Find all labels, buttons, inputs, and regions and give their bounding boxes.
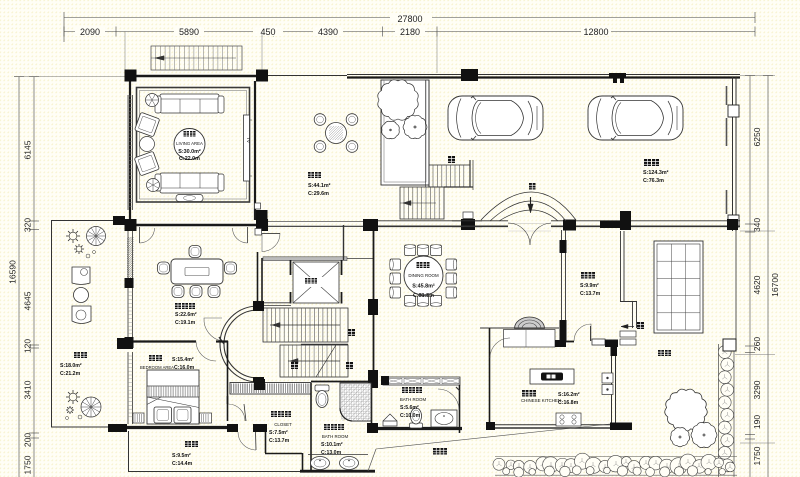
svg-text:27800: 27800 [397,14,422,24]
svg-text:6145: 6145 [23,140,33,159]
svg-text:S:9.5m²: S:9.5m² [172,453,191,459]
svg-text:C:76.3m: C:76.3m [643,178,664,184]
svg-text:C:13.7m: C:13.7m [580,291,601,297]
svg-text:S:9.9m²: S:9.9m² [580,283,599,289]
svg-text:S:124.3m²: S:124.3m² [643,170,669,176]
svg-text:450: 450 [260,27,275,37]
svg-text:1750: 1750 [23,455,33,474]
svg-text:CLOSET: CLOSET [274,422,292,427]
svg-text:4645: 4645 [23,291,33,310]
svg-text:S:7.5m²: S:7.5m² [269,430,288,436]
svg-text:S:18.0m²: S:18.0m² [60,363,82,369]
svg-text:C:29.6m: C:29.6m [308,191,329,197]
svg-text:4620: 4620 [752,275,762,294]
svg-text:6250: 6250 [752,127,762,146]
svg-text:LIVING AREA: LIVING AREA [176,141,203,146]
svg-text:C:13.7m: C:13.7m [269,438,290,444]
svg-text:200: 200 [23,433,33,447]
svg-text:16590: 16590 [8,260,18,284]
svg-text:BATH ROOM: BATH ROOM [322,434,349,439]
svg-text:3410: 3410 [23,380,33,399]
svg-text:4390: 4390 [318,27,338,37]
svg-text:S:44.1m²: S:44.1m² [308,183,331,189]
svg-text:C:16.0m: C:16.0m [174,365,195,371]
svg-text:C:16.8m: C:16.8m [558,400,579,406]
svg-text:260: 260 [752,337,762,351]
svg-text:C:31.3m: C:31.3m [413,293,434,299]
svg-text:C:19.1m: C:19.1m [175,320,196,326]
svg-text:12800: 12800 [583,27,608,37]
svg-text:C:22.0m: C:22.0m [179,156,200,162]
svg-text:320: 320 [23,218,33,232]
svg-text:S:5.6m²: S:5.6m² [400,405,419,411]
svg-text:C:14.4m: C:14.4m [172,461,193,467]
svg-text:340: 340 [752,218,762,232]
svg-text:5890: 5890 [179,27,199,37]
svg-text:C:13.0m: C:13.0m [321,450,342,456]
svg-text:S:22.6m²: S:22.6m² [175,312,197,318]
svg-text:S:16.2m²: S:16.2m² [558,392,580,398]
svg-text:120: 120 [23,339,33,353]
svg-text:CHINESE KITCHEN: CHINESE KITCHEN [521,398,561,403]
svg-text:S:10.1m²: S:10.1m² [321,442,343,448]
svg-text:2180: 2180 [400,27,420,37]
svg-text:DINING ROOM: DINING ROOM [408,273,439,278]
svg-text:C:10.0m: C:10.0m [400,413,421,419]
svg-text:2090: 2090 [80,27,100,37]
svg-text:1750: 1750 [752,446,762,465]
svg-text:16700: 16700 [770,273,780,297]
svg-text:S:30.0m²: S:30.0m² [178,149,201,155]
svg-text:S:45.8m²: S:45.8m² [412,284,435,290]
svg-text:S:15.4m²: S:15.4m² [172,357,194,363]
svg-text:190: 190 [752,415,762,429]
svg-text:C:21.2m: C:21.2m [60,371,81,377]
svg-text:BEDROOM AREA: BEDROOM AREA [140,365,174,370]
svg-text:3290: 3290 [752,380,762,399]
svg-text:TV: TV [246,137,251,143]
svg-text:BATH ROOM: BATH ROOM [400,397,427,402]
